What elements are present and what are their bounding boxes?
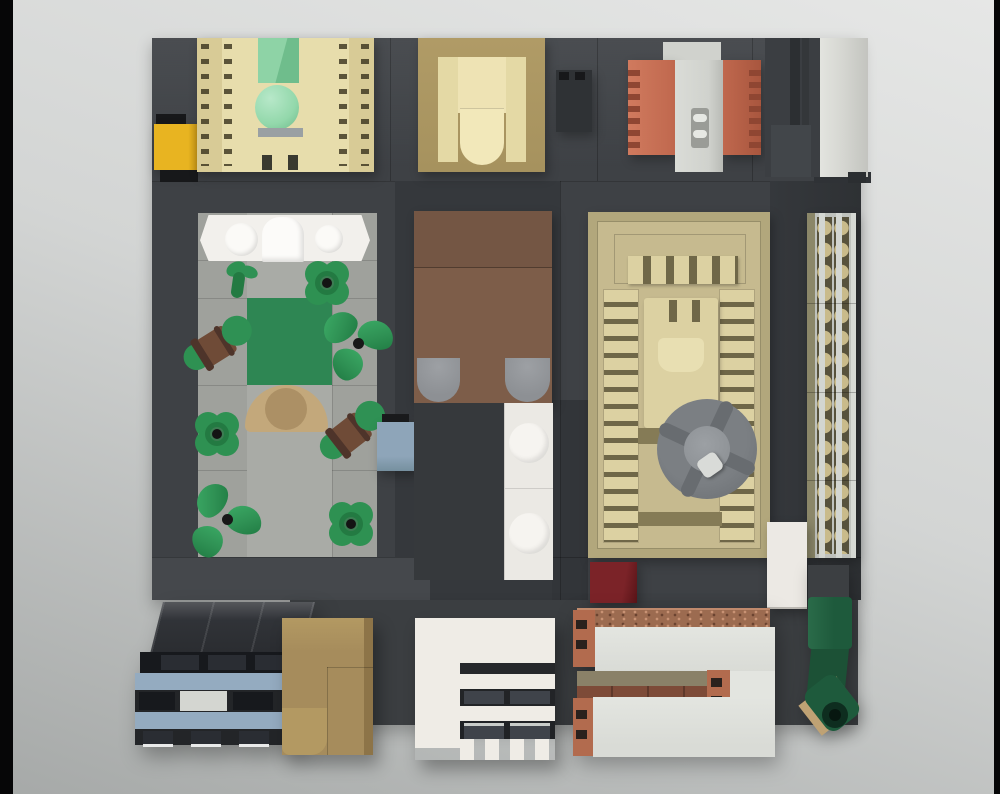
window-with-sill bbox=[143, 731, 173, 747]
gray-stripe bbox=[258, 128, 303, 137]
conveyor-seam bbox=[807, 303, 856, 304]
footboard-slot bbox=[262, 155, 272, 170]
vent-bar bbox=[693, 130, 707, 138]
nightstand-notches-left bbox=[201, 44, 209, 166]
brick-teeth bbox=[628, 64, 640, 151]
tile-path bbox=[504, 403, 553, 580]
fireplace-wing-right bbox=[723, 60, 761, 155]
rail bbox=[836, 213, 842, 558]
right-black-bar bbox=[994, 0, 1000, 794]
copper-brick bbox=[573, 698, 595, 756]
comb-column-left bbox=[604, 290, 638, 542]
trefoil-plant bbox=[192, 482, 264, 560]
conveyor-edge-right bbox=[851, 213, 856, 558]
conveyor-edge bbox=[807, 213, 815, 558]
baseplate-deep-zone bbox=[552, 400, 588, 600]
fan-wheel bbox=[657, 399, 757, 499]
bedroom-module bbox=[197, 38, 374, 172]
green-pillow bbox=[258, 38, 299, 83]
copper-brick bbox=[573, 610, 595, 667]
yellow-brick bbox=[154, 124, 197, 170]
white-building bbox=[415, 618, 555, 760]
tower-crenellation bbox=[654, 300, 706, 322]
apartment-module bbox=[123, 600, 298, 755]
white-building-body bbox=[460, 618, 555, 739]
bed-side-notches bbox=[339, 44, 347, 166]
armchair-cushion bbox=[460, 108, 504, 165]
crenellated-bar bbox=[628, 256, 738, 284]
muzzle-bore bbox=[829, 709, 841, 721]
light-window bbox=[180, 691, 227, 711]
window bbox=[464, 723, 504, 739]
panel-foot bbox=[848, 172, 866, 183]
tan-building-facet bbox=[364, 618, 373, 755]
dark-row bbox=[460, 689, 555, 706]
window bbox=[139, 692, 175, 710]
stud bbox=[559, 72, 569, 80]
plate-seam bbox=[560, 181, 561, 600]
apartment-front bbox=[135, 673, 289, 745]
window-with-sill bbox=[239, 731, 269, 747]
gray-pillow bbox=[417, 358, 460, 402]
blue-stripe bbox=[135, 673, 289, 690]
brick-slot bbox=[576, 730, 587, 739]
green-rug bbox=[247, 298, 332, 385]
bed-headboard bbox=[414, 211, 552, 268]
window bbox=[233, 692, 273, 710]
cannon-muzzle bbox=[822, 702, 848, 728]
brick-teeth bbox=[749, 64, 761, 151]
twig-plant bbox=[218, 260, 262, 300]
table-plate-right bbox=[315, 225, 343, 253]
apartment-window-row-top bbox=[140, 652, 292, 673]
round-tile bbox=[509, 423, 549, 463]
chimney-column bbox=[675, 60, 723, 172]
nightstand-notches-right bbox=[361, 44, 369, 166]
table-plate-left bbox=[225, 223, 258, 256]
cannon-block bbox=[808, 597, 852, 649]
table-chair bbox=[262, 217, 304, 262]
cabinet-drawer bbox=[771, 125, 811, 177]
armchair-arm-left bbox=[438, 57, 458, 162]
conveyor-seam bbox=[807, 392, 856, 393]
window-with-sill bbox=[191, 731, 221, 747]
blue-bench bbox=[377, 422, 417, 471]
temple-module bbox=[588, 212, 770, 558]
twig-stem bbox=[230, 271, 246, 298]
fireplace-wing-left bbox=[628, 60, 675, 155]
window bbox=[208, 655, 246, 670]
brick-slot bbox=[576, 710, 587, 719]
dark-row bbox=[460, 663, 555, 674]
bed-foot-area bbox=[414, 403, 504, 580]
trefoil-plant bbox=[322, 305, 394, 385]
plate-seam bbox=[597, 38, 598, 181]
armchair-arm-right bbox=[506, 57, 526, 162]
flower-plant bbox=[195, 412, 239, 456]
conveyor-seam bbox=[807, 480, 856, 481]
brown-bed-module bbox=[414, 211, 552, 403]
tower-cap bbox=[658, 338, 704, 372]
window bbox=[510, 723, 550, 739]
temple-band bbox=[638, 512, 722, 526]
plant-center bbox=[353, 338, 364, 349]
window bbox=[161, 655, 199, 670]
rail bbox=[819, 213, 825, 558]
dark-row bbox=[460, 721, 555, 739]
brick-slot bbox=[711, 678, 722, 687]
gray-slab bbox=[595, 627, 775, 671]
garden-module bbox=[152, 181, 392, 600]
gray-slab-side bbox=[730, 671, 775, 697]
masonry-module bbox=[565, 598, 810, 760]
plant-center bbox=[222, 514, 233, 525]
green-ball bbox=[255, 85, 299, 130]
fireplace-module bbox=[628, 42, 761, 173]
cabinet-body bbox=[765, 38, 822, 177]
vent-bar bbox=[693, 114, 707, 122]
stud bbox=[575, 72, 585, 80]
bed-side-notches bbox=[224, 44, 232, 166]
red-brick bbox=[590, 562, 637, 603]
tan-building bbox=[282, 618, 373, 755]
door-panel bbox=[820, 38, 868, 179]
cannon-cap bbox=[808, 565, 849, 600]
blue-stripe bbox=[135, 712, 289, 729]
armchair-module bbox=[418, 38, 545, 172]
conveyor-strip bbox=[807, 213, 856, 558]
seam bbox=[327, 667, 328, 755]
window bbox=[464, 691, 504, 704]
white-panel bbox=[415, 618, 461, 748]
tan-building-step bbox=[282, 708, 327, 755]
round-table-top bbox=[265, 388, 307, 430]
round-tile bbox=[509, 513, 550, 554]
window bbox=[510, 691, 550, 704]
footboard-slot bbox=[288, 155, 298, 170]
render-stage bbox=[0, 0, 1000, 794]
brick-slot bbox=[576, 640, 587, 649]
brick-slot bbox=[576, 620, 587, 629]
cannon-module bbox=[800, 560, 860, 738]
chimney-top-slab bbox=[663, 42, 721, 60]
flower-plant bbox=[305, 261, 349, 305]
flower-plant bbox=[329, 502, 373, 546]
tile-seam bbox=[505, 488, 553, 489]
utility-box bbox=[556, 70, 592, 132]
crenellated-teeth bbox=[460, 739, 555, 760]
gray-slab bbox=[593, 697, 775, 757]
cabinet-module bbox=[765, 38, 871, 183]
left-black-bar bbox=[0, 0, 13, 794]
plate-seam bbox=[390, 38, 391, 181]
gray-pillow bbox=[505, 358, 550, 402]
seam bbox=[327, 667, 373, 668]
armchair-seat bbox=[458, 63, 506, 113]
